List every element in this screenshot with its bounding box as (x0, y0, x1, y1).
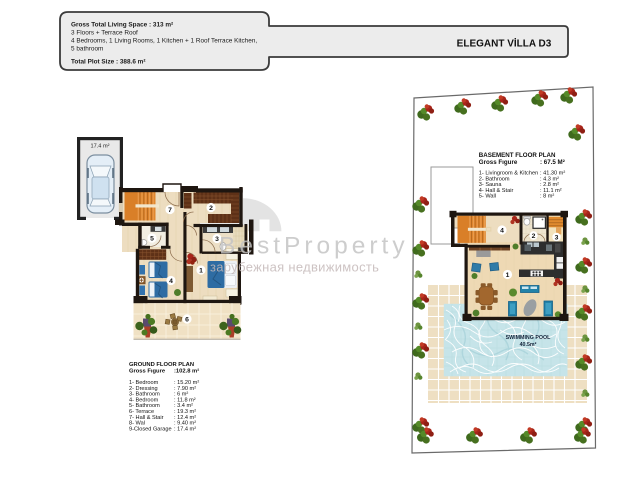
svg-text:4: 4 (500, 228, 504, 235)
svg-text:Gross Fıgure: Gross Fıgure (129, 369, 166, 375)
svg-text:: 8 m²: : 8 m² (540, 194, 554, 200)
svg-text:2: 2 (532, 233, 536, 240)
svg-text:5 bathroom: 5 bathroom (71, 45, 103, 52)
svg-text:3 Floors + Terrace Roof: 3 Floors + Terrace Roof (71, 29, 138, 36)
svg-text:SWIMMING POOL: SWIMMING POOL (506, 335, 551, 341)
svg-text:6: 6 (185, 317, 189, 324)
svg-text:40.5m²: 40.5m² (520, 342, 537, 348)
svg-text:7: 7 (168, 207, 172, 214)
svg-text:3: 3 (555, 235, 559, 242)
svg-text:GROUND FLOOR PLAN: GROUND FLOOR PLAN (129, 362, 194, 368)
svg-text:Total Plot Size : 388.6 m²: Total Plot Size : 388.6 m² (71, 59, 145, 66)
svg-text:17.4 m²: 17.4 m² (91, 144, 110, 150)
svg-text:1: 1 (506, 272, 510, 279)
svg-text:BestProperty: BestProperty (219, 233, 409, 260)
svg-text:4 Bedrooms, 1 Living Rooms, 1: 4 Bedrooms, 1 Living Rooms, 1 Kitchen + … (71, 38, 257, 45)
svg-text:: 17.4 m²: : 17.4 m² (174, 426, 196, 432)
svg-text:Gross Fıgure: Gross Fıgure (479, 159, 518, 166)
svg-text::102.8 m²: :102.8 m² (174, 368, 199, 375)
svg-text:5- Wall: 5- Wall (479, 194, 496, 200)
svg-text:1: 1 (199, 268, 203, 275)
svg-text:BASEMENT FLOOR PLAN: BASEMENT FLOOR PLAN (479, 152, 556, 159)
svg-text:2: 2 (209, 205, 213, 212)
svg-text:: 67.5 M²: : 67.5 M² (540, 159, 565, 166)
svg-text:4: 4 (169, 278, 173, 285)
svg-text:9-Closed Garage: 9-Closed Garage (129, 426, 172, 432)
svg-text:ELEGANT VİLLA D3: ELEGANT VİLLA D3 (457, 36, 552, 49)
svg-text:Gross Total Living Space : 3: Gross Total Living Space : 313 m² (71, 21, 173, 28)
svg-text:зарубежная недвижимость: зарубежная недвижимость (210, 260, 379, 275)
svg-text:5: 5 (150, 236, 154, 243)
